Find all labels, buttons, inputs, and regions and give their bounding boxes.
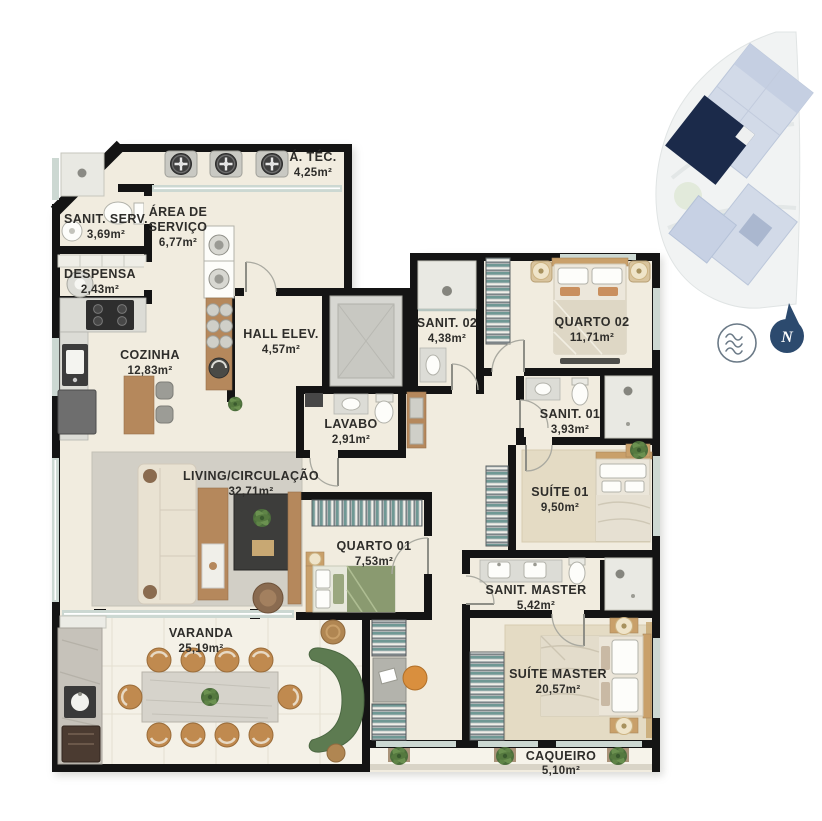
area-lavabo: 2,91m² <box>332 434 370 446</box>
label-despensa: DESPENSA <box>64 267 136 281</box>
orientation-icons: N <box>718 303 804 362</box>
label-sanit-master: SANIT. MASTER <box>485 583 586 597</box>
label-caqueiro: CAQUEIRO <box>526 749 597 763</box>
area-varanda: 25,19m² <box>179 643 224 655</box>
area-despensa: 2,43m² <box>81 284 119 296</box>
elevator-shaft <box>330 296 402 386</box>
label-hall-elev: HALL ELEV. <box>243 327 319 341</box>
label-lavabo: LAVABO <box>324 417 377 431</box>
label-living: LIVING/CIRCULAÇÃO <box>183 468 319 483</box>
area-a-tec: 4,25m² <box>294 167 332 179</box>
floor-plan: Á. TÉC. 4,25m² SANIT. SERV. 3,69m² ÁREA … <box>0 0 822 821</box>
area-sanit-master: 5,42m² <box>517 600 555 612</box>
label-quarto-02: QUARTO 02 <box>555 315 630 329</box>
label-a-tec: Á. TÉC. <box>289 149 336 164</box>
label-area-servico-2: SERVIÇO <box>149 220 208 234</box>
area-hall-elev: 4,57m² <box>262 344 300 356</box>
area-quarto-02: 11,71m² <box>570 332 614 344</box>
laundry-washer-dryer <box>204 226 234 298</box>
area-living: 32,71m² <box>229 486 274 498</box>
area-suite-master: 20,57m² <box>536 684 581 696</box>
waves-icon <box>718 324 756 362</box>
label-varanda: VARANDA <box>169 626 233 640</box>
label-cozinha: COZINHA <box>120 348 180 362</box>
label-suite-01: SUÍTE 01 <box>531 484 588 499</box>
area-suite-01: 9,50m² <box>541 502 579 514</box>
suite1-furniture <box>596 440 652 541</box>
north-label: N <box>780 329 794 346</box>
label-area-servico-1: ÁREA DE <box>149 204 208 219</box>
floor-plan-page: Á. TÉC. 4,25m² SANIT. SERV. 3,69m² ÁREA … <box>0 0 822 821</box>
label-sanit-01: SANIT. 01 <box>540 407 601 421</box>
key-plan <box>656 32 813 308</box>
area-sanit-02: 4,38m² <box>428 333 466 345</box>
area-caqueiro: 5,10m² <box>542 765 580 777</box>
label-quarto-01: QUARTO 01 <box>337 539 412 553</box>
hall-closet <box>486 466 508 546</box>
area-sanit-01: 3,93m² <box>551 424 589 436</box>
label-suite-master: SUÍTE MASTER <box>509 666 607 681</box>
compass-icon: N <box>770 303 804 353</box>
area-quarto-01: 7,53m² <box>355 556 393 568</box>
caqueiro-parapet <box>370 764 652 770</box>
area-cozinha: 12,83m² <box>128 365 173 377</box>
label-sanit-serv: SANIT. SERV. <box>64 212 148 226</box>
area-sanit-serv: 3,69m² <box>87 229 125 241</box>
label-sanit-02: SANIT. 02 <box>417 316 478 330</box>
area-area-servico: 6,77m² <box>159 237 197 249</box>
ac-condensers <box>165 151 288 177</box>
